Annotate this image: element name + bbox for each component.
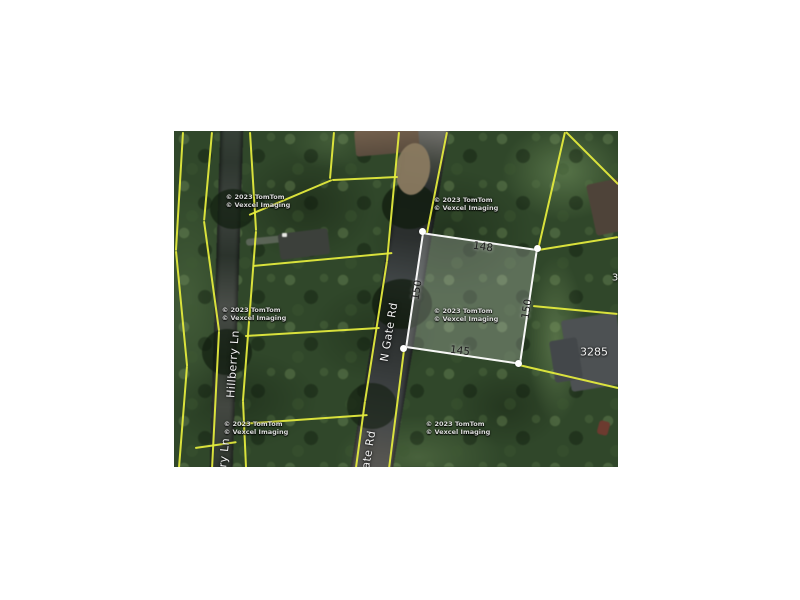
watermark-line1: © 2023 TomTom bbox=[222, 306, 281, 314]
parcel-boundaries-layer bbox=[174, 131, 618, 467]
parcel-boundary-line bbox=[386, 132, 400, 262]
parcel-boundary-line bbox=[519, 364, 618, 389]
watermark-line1: © 2023 TomTom bbox=[434, 307, 493, 315]
parcel-vertex-dot bbox=[419, 228, 426, 235]
map-attribution-watermark: © 2023 TomTom © Vexcel Imaging bbox=[222, 306, 287, 322]
parcel-boundary-line bbox=[175, 251, 188, 367]
parcel-boundary-line bbox=[203, 132, 213, 221]
watermark-line1: © 2023 TomTom bbox=[434, 196, 493, 204]
map-attribution-watermark: © 2023 TomTom © Vexcel Imaging bbox=[434, 307, 499, 323]
watermark-line2: © Vexcel Imaging bbox=[222, 314, 287, 322]
watermark-line1: © 2023 TomTom bbox=[426, 420, 485, 428]
parcel-vertex-dot bbox=[400, 345, 407, 352]
parcel-vertex-dot bbox=[515, 360, 522, 367]
parcel-dim-bottom: 145 bbox=[449, 344, 470, 358]
watermark-line1: © 2023 TomTom bbox=[226, 193, 285, 201]
parcel-boundary-line bbox=[537, 132, 566, 250]
parcel-boundary-line bbox=[203, 221, 220, 331]
parcel-boundary-line bbox=[178, 366, 188, 467]
parcel-vertex-dot bbox=[534, 245, 541, 252]
parcel-boundary-line bbox=[253, 252, 393, 267]
highlighted-parcel bbox=[405, 232, 538, 365]
house-number-3285: 3285 bbox=[580, 346, 608, 359]
watermark-line2: © Vexcel Imaging bbox=[226, 201, 291, 209]
parcel-boundary-line bbox=[329, 132, 335, 179]
map-attribution-watermark: © 2023 TomTom © Vexcel Imaging bbox=[224, 420, 289, 436]
house-number-partial: 3 bbox=[612, 273, 618, 284]
parcel-boundary-line bbox=[249, 132, 257, 231]
map-attribution-watermark: © 2023 TomTom © Vexcel Imaging bbox=[426, 420, 491, 436]
watermark-line2: © Vexcel Imaging bbox=[434, 315, 499, 323]
watermark-line2: © Vexcel Imaging bbox=[434, 204, 499, 212]
watermark-line2: © Vexcel Imaging bbox=[426, 428, 491, 436]
parcel-boundary-line bbox=[388, 350, 405, 467]
parcel-boundary-line bbox=[175, 132, 184, 251]
parcel-boundary-line bbox=[332, 176, 398, 181]
parcel-boundary-line bbox=[538, 236, 618, 251]
watermark-line2: © Vexcel Imaging bbox=[224, 428, 289, 436]
parcel-boundary-line bbox=[533, 305, 618, 315]
parcel-boundary-line bbox=[245, 327, 380, 337]
parcel-boundary-line bbox=[426, 132, 448, 233]
map-attribution-watermark: © 2023 TomTom © Vexcel Imaging bbox=[226, 193, 291, 209]
map-attribution-watermark: © 2023 TomTom © Vexcel Imaging bbox=[434, 196, 499, 212]
satellite-map[interactable]: © 2023 TomTom © Vexcel Imaging © 2023 To… bbox=[174, 131, 618, 467]
watermark-line1: © 2023 TomTom bbox=[224, 420, 283, 428]
parcel-boundary-line bbox=[565, 131, 618, 185]
